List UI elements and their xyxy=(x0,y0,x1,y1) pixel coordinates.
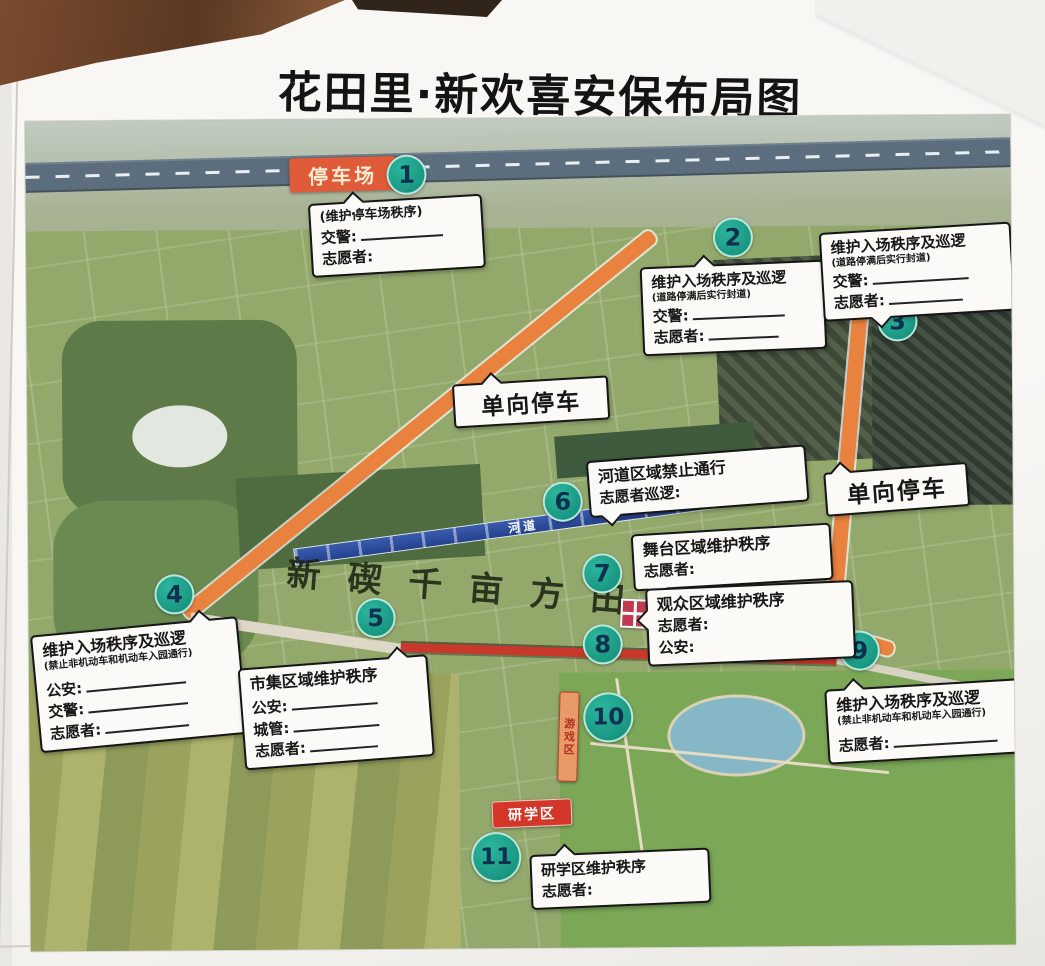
blank-line xyxy=(85,671,186,693)
callout-parking-duty: (维护停车场秩序) 交警: 志愿者: xyxy=(308,194,486,278)
marker-2: 2 xyxy=(713,217,753,257)
one-way-parking-label-left: 单向停车 xyxy=(452,375,610,428)
marker-11: 11 xyxy=(471,832,521,882)
pond-light xyxy=(132,405,227,468)
parking-lot-badge: 停车场 xyxy=(289,156,396,193)
callout-entry-patrol-2: 维护入场秩序及巡逻 (道路停满后实行封道) 交警: 志愿者: xyxy=(640,260,828,357)
callout-study-zone: 研学区维护秩序 志愿者: xyxy=(529,848,711,911)
blank-line xyxy=(888,288,963,305)
marker-10: 10 xyxy=(583,692,633,742)
marker-8: 8 xyxy=(583,624,623,664)
callout-stage-zone: 舞台区域维护秩序 志愿者: xyxy=(631,523,834,591)
blank-line xyxy=(708,325,778,341)
callout-entry-patrol-3: 维护入场秩序及巡逻 (道路停满后实行封道) 交警: 志愿者: xyxy=(819,222,1016,323)
study-zone-badge: 研学区 xyxy=(491,798,572,828)
marker-7: 7 xyxy=(582,553,622,593)
blank-line xyxy=(872,266,969,285)
marker-4: 4 xyxy=(154,574,194,614)
blank-line xyxy=(692,303,784,320)
game-zone-strip: 游戏区 xyxy=(557,691,580,782)
aerial-map: 河道 新碶千亩方田 停车场 游戏区 研学区 单向停车 单向停车 1 2 3 4 … xyxy=(25,115,1016,952)
blank-line xyxy=(291,692,378,712)
marker-6: 6 xyxy=(543,482,583,522)
marker-1: 1 xyxy=(386,155,426,195)
blank-line xyxy=(293,713,380,733)
callout-entry-patrol-9: 维护入场秩序及巡逻 (禁止非机动车和机动车入园通行) 志愿者: xyxy=(824,676,1016,765)
blank-line xyxy=(893,729,998,748)
blank-line xyxy=(309,734,378,752)
callout-market-zone: 市集区域维护秩序 公安: 城管: 志愿者: xyxy=(238,654,435,770)
photo-of-printed-map: 花田里·新欢喜安保布局图 河道 新碶千亩方田 停车 xyxy=(0,0,1045,966)
callout-audience-zone: 观众区域维护秩序 志愿者: 公安: xyxy=(645,580,856,666)
blank-line xyxy=(360,223,443,241)
callout-entry-patrol-4: 维护入场秩序及巡逻 (禁止非机动车和机动车入园通行) 公安: 交警: 志愿者: xyxy=(30,616,248,753)
marker-5: 5 xyxy=(355,598,395,638)
